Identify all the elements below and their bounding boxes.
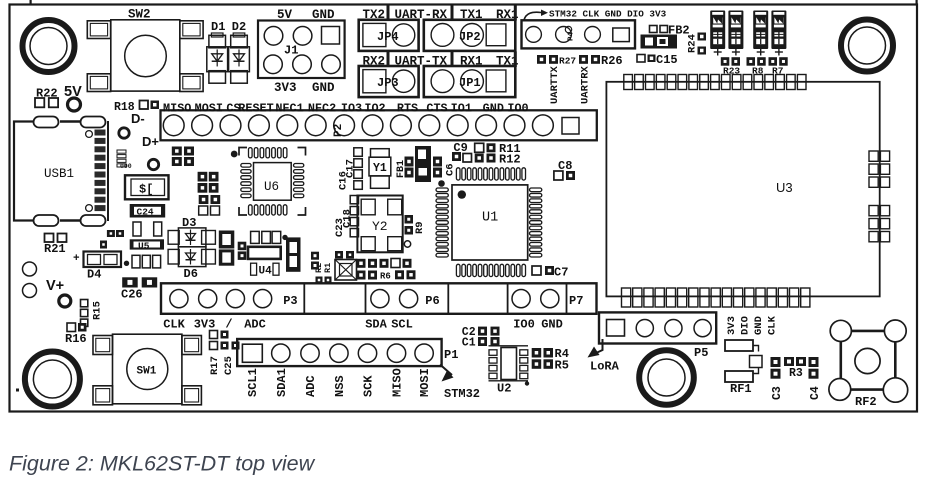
svg-text:R26: R26: [601, 54, 623, 68]
svg-text:MOSI: MOSI: [418, 368, 432, 397]
svg-text:STM32 CLK GND DIO 3V3: STM32 CLK GND DIO 3V3: [549, 9, 667, 20]
svg-text:P5: P5: [694, 346, 708, 360]
svg-text:D-: D-: [131, 111, 145, 126]
svg-text:MISO: MISO: [163, 102, 191, 116]
svg-text:RTS: RTS: [397, 102, 418, 116]
svg-text:CLK: CLK: [163, 318, 185, 332]
svg-text:U4: U4: [259, 266, 273, 278]
svg-text:R27: R27: [559, 56, 576, 67]
svg-text:SCL: SCL: [391, 318, 413, 332]
svg-text:NSS: NSS: [333, 375, 347, 397]
svg-text:P3: P3: [283, 294, 297, 308]
svg-text:V+: V+: [46, 278, 64, 294]
svg-text:C6: C6: [445, 163, 457, 176]
svg-text:SDA1: SDA1: [275, 368, 289, 397]
svg-text:C17: C17: [345, 159, 357, 178]
svg-text:P6: P6: [425, 294, 439, 308]
svg-text:R16: R16: [65, 332, 87, 346]
svg-text:C25: C25: [223, 356, 235, 375]
svg-text:P2: P2: [333, 124, 345, 137]
svg-text:P4: P4: [568, 31, 576, 41]
svg-text:Y1: Y1: [373, 162, 387, 175]
svg-text:GND: GND: [753, 316, 765, 335]
svg-text:C7: C7: [554, 266, 568, 280]
svg-text:RESET: RESET: [238, 102, 273, 116]
svg-text:R21: R21: [44, 242, 66, 256]
svg-text:U6: U6: [264, 180, 279, 194]
svg-text:R9: R9: [414, 221, 426, 234]
svg-text:GND: GND: [541, 318, 563, 332]
svg-text:GND: GND: [483, 102, 504, 116]
svg-text:JP3: JP3: [377, 76, 399, 90]
svg-text:NFC1: NFC1: [275, 102, 303, 116]
svg-text:USB1: USB1: [44, 167, 74, 181]
svg-text:C1: C1: [462, 337, 476, 350]
svg-text:C4: C4: [809, 386, 822, 400]
svg-text:STM32: STM32: [444, 387, 480, 401]
svg-text:D1: D1: [211, 20, 225, 34]
svg-text:MOSI: MOSI: [195, 102, 223, 116]
svg-text:Figure 2: MKL62ST-DT top view: Figure 2: MKL62ST-DT top view: [9, 452, 316, 476]
svg-text:R6: R6: [380, 272, 391, 282]
svg-text:+: +: [73, 253, 80, 265]
svg-text:3V3: 3V3: [274, 81, 297, 95]
svg-text:NFC2: NFC2: [308, 102, 336, 116]
svg-text:P1: P1: [444, 348, 458, 362]
svg-text:RF1: RF1: [730, 382, 752, 396]
svg-text:UARTTX: UARTTX: [549, 65, 561, 104]
svg-text:3V3: 3V3: [726, 316, 738, 335]
svg-text:LoRA: LoRA: [590, 360, 620, 374]
svg-text:C26: C26: [121, 288, 143, 302]
svg-text:JP2: JP2: [459, 30, 481, 44]
svg-text:Y2: Y2: [372, 219, 388, 234]
svg-text:R15: R15: [92, 301, 104, 320]
svg-text:D6: D6: [184, 267, 198, 281]
svg-text:IO0: IO0: [513, 318, 535, 332]
svg-text:R3: R3: [789, 367, 803, 380]
svg-text:IO1: IO1: [451, 102, 472, 116]
svg-text:J1: J1: [284, 44, 298, 58]
svg-text:R12: R12: [499, 153, 521, 167]
svg-text:C15: C15: [656, 53, 678, 67]
svg-text:U1: U1: [482, 211, 498, 226]
svg-text:DIO: DIO: [740, 316, 752, 335]
svg-text:RF2: RF2: [855, 395, 877, 409]
svg-text:IO2: IO2: [364, 102, 385, 116]
svg-text:IO3: IO3: [341, 102, 362, 116]
svg-text:3V3: 3V3: [194, 318, 216, 332]
svg-text:ADC: ADC: [304, 375, 318, 397]
svg-text:JP1: JP1: [459, 76, 481, 90]
svg-text:GND: GND: [312, 81, 335, 95]
svg-text:C3: C3: [771, 386, 784, 400]
svg-text:R1: R1: [323, 263, 333, 273]
svg-text:C24: C24: [137, 207, 154, 218]
svg-text:CLK: CLK: [767, 315, 779, 335]
svg-text:SCK: SCK: [362, 375, 376, 397]
svg-text:SW1: SW1: [137, 366, 157, 378]
svg-text:U3: U3: [776, 180, 793, 195]
svg-text:R5: R5: [555, 359, 569, 373]
svg-text:UARTRX: UARTRX: [580, 65, 592, 104]
svg-text:R24: R24: [687, 34, 699, 53]
svg-text:D2: D2: [232, 20, 246, 34]
svg-text:MISO: MISO: [391, 368, 405, 397]
svg-text:P7: P7: [569, 294, 583, 308]
svg-text:U5: U5: [138, 240, 150, 251]
svg-text:D4: D4: [87, 268, 101, 282]
svg-text:CTS: CTS: [426, 102, 447, 116]
svg-text:ADC: ADC: [244, 318, 266, 332]
svg-text:R17: R17: [209, 356, 221, 375]
svg-text:U2: U2: [497, 382, 511, 396]
svg-text:JP4: JP4: [377, 30, 399, 44]
svg-text:/: /: [225, 318, 232, 332]
svg-text:$[: $[: [139, 183, 153, 197]
svg-text:SDA: SDA: [365, 318, 387, 332]
svg-text:D+: D+: [142, 134, 159, 149]
svg-text:IO0: IO0: [507, 102, 528, 116]
svg-text:SCL1: SCL1: [246, 368, 260, 397]
